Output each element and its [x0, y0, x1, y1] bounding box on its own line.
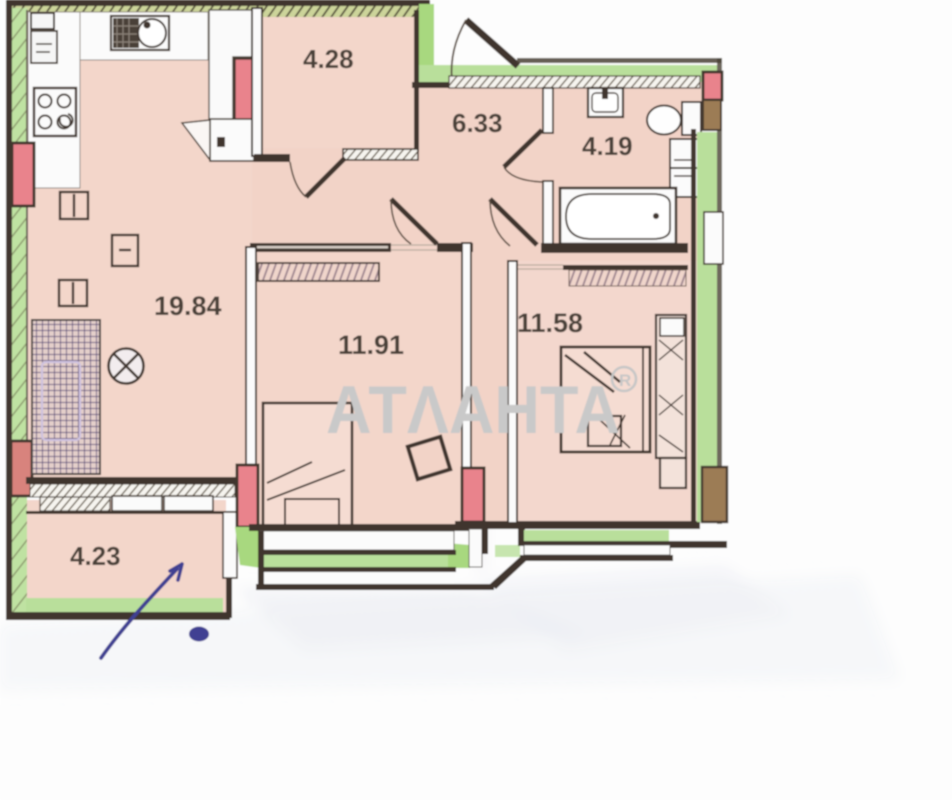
svg-text:4.19: 4.19: [582, 131, 633, 161]
svg-text:11.58: 11.58: [517, 308, 583, 338]
svg-text:11.91: 11.91: [338, 330, 404, 360]
svg-text:R: R: [619, 371, 631, 390]
svg-text:6.33: 6.33: [452, 108, 503, 138]
svg-text:АТΛАНТА: АТΛАНТА: [326, 372, 620, 448]
svg-text:19.84: 19.84: [154, 291, 222, 321]
svg-text:4.28: 4.28: [303, 44, 354, 74]
svg-text:4.23: 4.23: [70, 541, 121, 571]
